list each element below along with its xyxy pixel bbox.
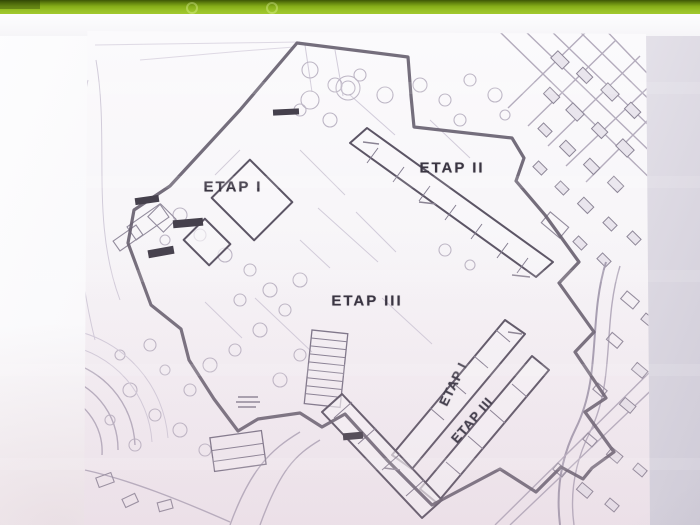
etap-3-label: ETAP III (331, 293, 402, 310)
urban-blocks-upper-right (500, 31, 650, 267)
etap-1-label: ETAP I (204, 179, 263, 196)
site-plan-drawing (84, 31, 650, 525)
photo-of-site-plan-slide: ETAP I ETAP II ETAP III ETAP I ETAP III (0, 0, 700, 525)
site-buildings (113, 160, 348, 472)
slide-bar-ring-decoration (186, 2, 198, 14)
etap-2-label: ETAP II (419, 160, 484, 177)
contour-arcs (84, 330, 168, 455)
urban-blocks-bottom-left (85, 432, 320, 525)
existing-building (210, 431, 266, 472)
long-building-strip (350, 128, 553, 277)
slide-bar-ring-decoration (266, 2, 278, 14)
slide-header-bar (0, 0, 700, 14)
stage-strips (322, 320, 549, 518)
site-plan-sheet (84, 31, 650, 525)
